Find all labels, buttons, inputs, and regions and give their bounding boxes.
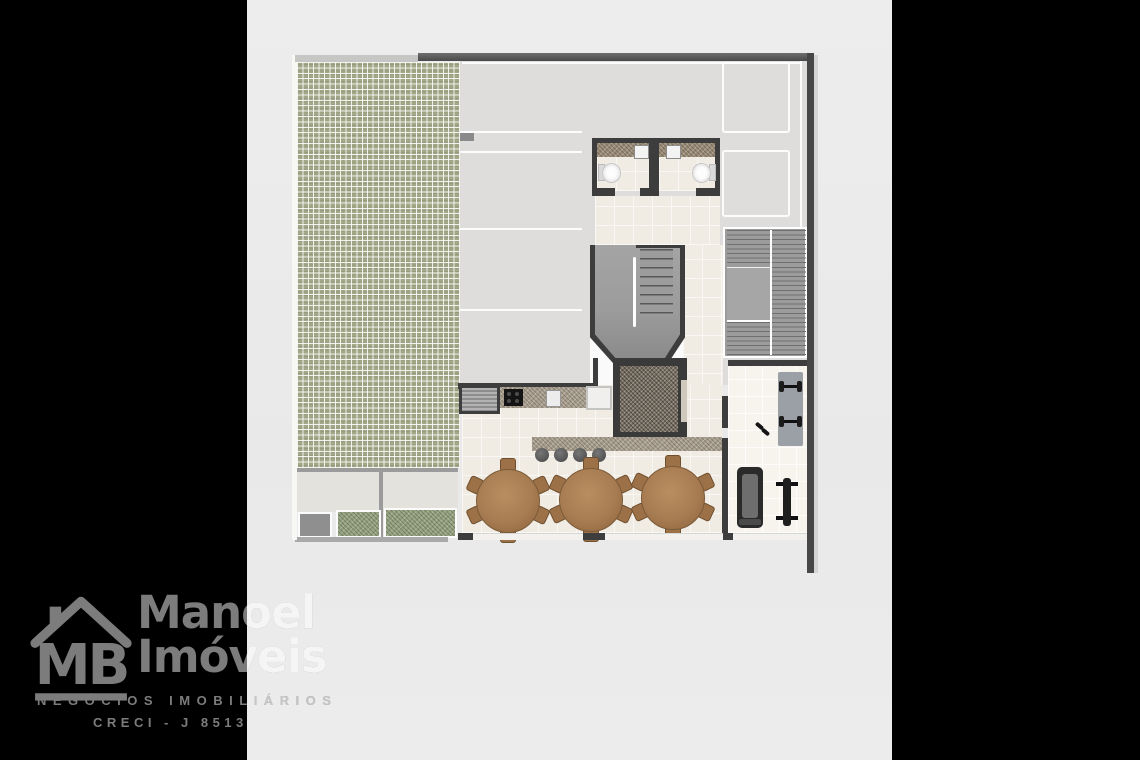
glass-wall (458, 533, 807, 540)
walkway (297, 472, 458, 512)
walkway-wall (297, 468, 458, 472)
grill-counter (459, 385, 500, 414)
parking-line (460, 131, 582, 133)
fridge-icon (586, 386, 612, 410)
burner (515, 399, 519, 403)
stair-run-right (770, 230, 806, 355)
svg-text:MB: MB (35, 633, 128, 698)
gym-top-wall (728, 360, 807, 366)
parking-stall (722, 150, 790, 217)
left-wall (292, 55, 297, 540)
stair-run-top (727, 230, 770, 266)
round-table (476, 469, 540, 533)
door-frame (583, 533, 605, 540)
washbasin (666, 145, 681, 159)
burner (515, 392, 519, 396)
top-wall (418, 53, 809, 61)
planter (384, 508, 457, 538)
toilet-icon (692, 163, 711, 183)
planter (336, 510, 381, 538)
cooktop-icon (504, 389, 523, 406)
top-wall-light (295, 55, 418, 62)
round-table (559, 468, 623, 532)
real-estate-floorplan-image: MB Manoel Imóveis NEGÓCIOS IMOBILIÁRIOS … (0, 0, 1140, 760)
treadmill-console (739, 519, 761, 525)
bottom-wall-left (295, 537, 448, 542)
garage-right-line (800, 60, 802, 230)
stair-top-edge (636, 245, 685, 248)
ground-floor-plan (290, 45, 820, 577)
toilet-icon (602, 163, 621, 183)
hall-floor (595, 196, 720, 245)
stair-steps (640, 249, 673, 315)
column-stub (458, 133, 474, 141)
barbell-plate (797, 416, 802, 427)
stair-run-bottom (727, 320, 770, 357)
paved-garden-area (297, 62, 460, 468)
bar-stool (554, 448, 568, 462)
right-wall (807, 53, 814, 573)
main-staircase (590, 245, 685, 365)
elevator-door (681, 380, 687, 422)
gym-left-wall (722, 396, 728, 428)
bar-stool (535, 448, 549, 462)
elevator-cab (620, 366, 678, 432)
service-box (298, 512, 332, 538)
stair-landing (727, 267, 770, 320)
burner (507, 399, 511, 403)
gym-left-wall (722, 438, 728, 533)
washbasin (634, 145, 649, 159)
restroom-bottom-wall (640, 188, 659, 196)
treadmill-icon (737, 467, 763, 528)
elevator-shaft (613, 358, 687, 442)
right-wall-shadow (814, 55, 818, 573)
treadmill-belt (742, 474, 758, 518)
door-frame (458, 533, 473, 540)
parking-stall (722, 62, 790, 133)
door-frame (723, 533, 733, 540)
parking-line (460, 228, 582, 230)
barbell-plate (797, 381, 802, 392)
barbell-mat (778, 372, 803, 446)
restroom-bottom-wall (592, 188, 615, 196)
parking-line (460, 309, 582, 311)
restroom-bottom-wall (696, 188, 720, 196)
sink-icon (546, 390, 561, 407)
parking-line (460, 151, 582, 153)
barbell-plate (779, 381, 784, 392)
barbell-plate (779, 416, 784, 427)
secondary-staircase (723, 227, 807, 358)
burner (507, 392, 511, 396)
brand-registration: CRECI - J 8513 (93, 715, 248, 730)
weight-bench-icon (776, 478, 798, 528)
bench-pad (783, 478, 791, 526)
restrooms-block (592, 138, 720, 196)
stair-handrail (633, 257, 636, 327)
round-table (641, 466, 705, 530)
